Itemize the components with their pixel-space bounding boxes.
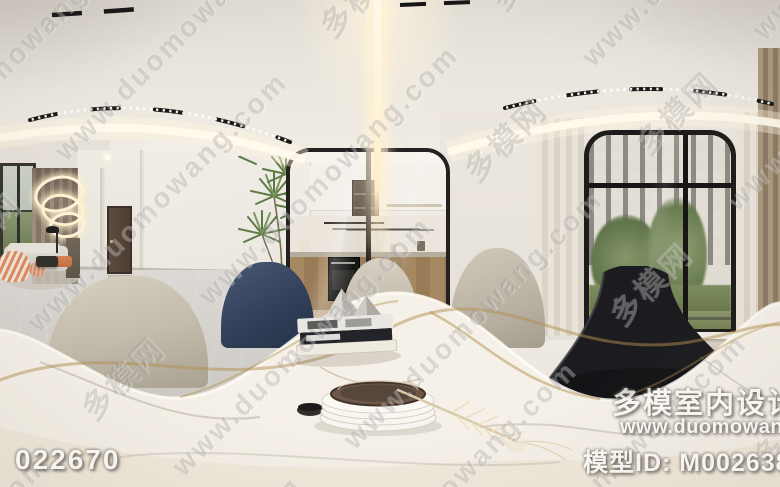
floor-lamp-head — [46, 226, 59, 233]
track-light-top-left — [52, 9, 140, 15]
coffee-table — [36, 256, 58, 267]
ceiling-lighting — [0, 0, 780, 180]
brand-url-label: www.duomowang.com — [620, 416, 780, 439]
bronze-tray — [331, 381, 425, 406]
plate-stack — [314, 381, 442, 436]
scene-number-label: 022670 — [15, 444, 120, 476]
led-strip-right — [505, 89, 772, 108]
dark-bowl — [297, 403, 323, 416]
panorama-photo: www.duomowang.com 多模网 www.duomowang.com … — [0, 0, 780, 487]
pendant-light-strip — [374, 0, 381, 252]
track-light-top-center — [400, 2, 472, 5]
model-id-label: 模型ID: M0026384 — [583, 443, 780, 479]
hallway-wall-corner — [100, 168, 106, 276]
floor-lamp-pole — [56, 231, 58, 253]
door-handle — [110, 240, 113, 243]
